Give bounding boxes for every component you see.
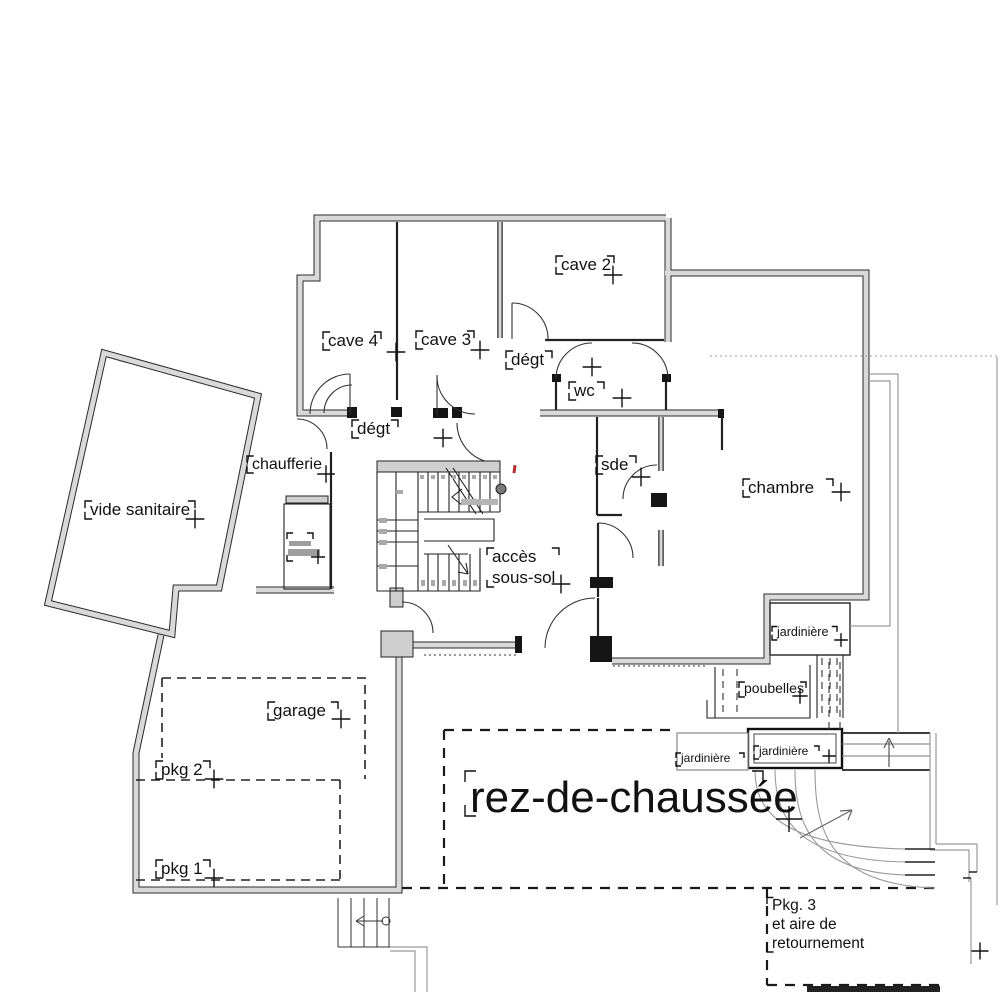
label-garage: garage — [268, 701, 350, 728]
label-text-jardiniere-3: jardinière — [680, 751, 731, 765]
label-plus-wc — [613, 389, 632, 408]
label-acces-sous-sol: accèssous-sol — [487, 547, 570, 593]
label-text-sde: sde — [601, 455, 628, 474]
label-tick-tr-sde — [629, 456, 636, 463]
label-text-chambre: chambre — [748, 478, 814, 497]
label-tick-tr-chambre — [826, 479, 833, 486]
stair-arrow-down-icon — [448, 545, 468, 574]
label-text-jardiniere-1: jardinière — [776, 625, 828, 639]
label-tick-tr-acces-sous-sol — [552, 548, 559, 555]
label-plus-cave3 — [471, 341, 490, 360]
label-plus-degt-lower — [434, 429, 453, 448]
label-tick-tr-garage — [331, 702, 338, 709]
label-pkg2: pkg 2 — [156, 760, 223, 788]
label-plus-pkg2 — [205, 770, 224, 789]
driveway-arrow-up-icon — [884, 738, 894, 767]
label-text-cave2: cave 2 — [561, 255, 611, 274]
driveway-steps — [905, 849, 935, 875]
label-plus-degt-upper — [583, 358, 602, 377]
label-cave4: cave 4 — [323, 331, 405, 361]
label-text-degt-lower: dégt — [357, 419, 390, 438]
label-text-degt-upper: dégt — [511, 350, 544, 369]
label-vide-sanitaire: vide sanitaire — [85, 500, 204, 528]
stair-newel-post — [496, 484, 506, 494]
label-text-cave4: cave 4 — [328, 331, 378, 350]
label-plus-pkg1 — [205, 869, 224, 888]
label-cave2: cave 2 — [556, 255, 622, 284]
label-plus-pkg3 — [971, 942, 988, 959]
gray-blocks — [381, 588, 413, 657]
red-reference-mark — [512, 465, 516, 473]
label-plus-garage — [332, 710, 351, 729]
label-text-acces-sous-sol: sous-sol — [492, 568, 555, 587]
label-text-wc: wc — [573, 381, 595, 400]
label-text-pkg3: retournement — [772, 935, 865, 952]
label-poubelles: poubelles — [739, 680, 808, 704]
label-pkg3: Pkg. 3et aire deretournement — [767, 897, 989, 960]
label-text-garage: garage — [273, 701, 326, 720]
stair-arrow-up-icon — [452, 489, 462, 505]
boiler — [284, 496, 330, 589]
doors — [297, 303, 668, 648]
exterior-stair-arrow-icon — [356, 916, 383, 926]
label-sde: sde — [596, 455, 650, 486]
label-tick-tr-pkg2 — [203, 761, 210, 768]
south-wall-band — [807, 986, 940, 992]
label-text-vide-sanitaire: vide sanitaire — [90, 500, 190, 519]
driveway-edges — [930, 733, 977, 882]
exterior-outlines — [390, 356, 997, 992]
label-degt-upper: dégt — [506, 350, 601, 376]
label-chambre: chambre — [743, 478, 850, 501]
label-tick-tr-degt-upper — [545, 351, 552, 358]
wall-piers — [347, 374, 724, 662]
floor-plan: rez-de-chaussée — plan d'architecte — [0, 0, 1000, 994]
label-text-chaufferie: chaufferie — [252, 456, 322, 473]
label-text-poubelles: poubelles — [744, 680, 804, 696]
label-chaufferie: chaufferie — [247, 456, 335, 483]
label-tick-tr-degt-lower — [391, 420, 398, 427]
label-text-pkg2: pkg 2 — [161, 760, 203, 779]
label-pkg1: pkg 1 — [156, 859, 223, 887]
labels-layer: cave 2cave 4cave 3dégtwcdégtsdechambrevi… — [85, 255, 989, 960]
label-text-acces-sous-sol: accès — [492, 547, 536, 566]
label-plus-chambre — [832, 483, 851, 502]
label-cave3: cave 3 — [416, 330, 489, 359]
label-plus-cave4 — [387, 343, 406, 362]
label-text-pkg3: Pkg. 3 — [772, 897, 816, 914]
floor-plan-canvas: rez-de-chaussée — plan d'architecte — [0, 0, 1000, 994]
label-rez-de-chaussee: rez-de-chaussée — [465, 771, 802, 832]
label-text-rez-de-chaussee: rez-de-chaussée — [470, 773, 798, 822]
label-text-cave3: cave 3 — [421, 330, 471, 349]
label-text-pkg1: pkg 1 — [161, 859, 203, 878]
label-degt-lower: dégt — [352, 419, 452, 447]
label-tick-tr-pkg1 — [203, 860, 210, 867]
stair-handrail — [461, 499, 498, 505]
label-tick-tr-wc — [597, 382, 604, 389]
label-wc: wc — [569, 381, 631, 407]
label-plus-sde — [632, 468, 651, 487]
label-text-jardiniere-2: jardinière — [758, 744, 809, 758]
label-text-pkg3: et aire de — [772, 916, 837, 933]
exterior-stair — [338, 898, 390, 947]
